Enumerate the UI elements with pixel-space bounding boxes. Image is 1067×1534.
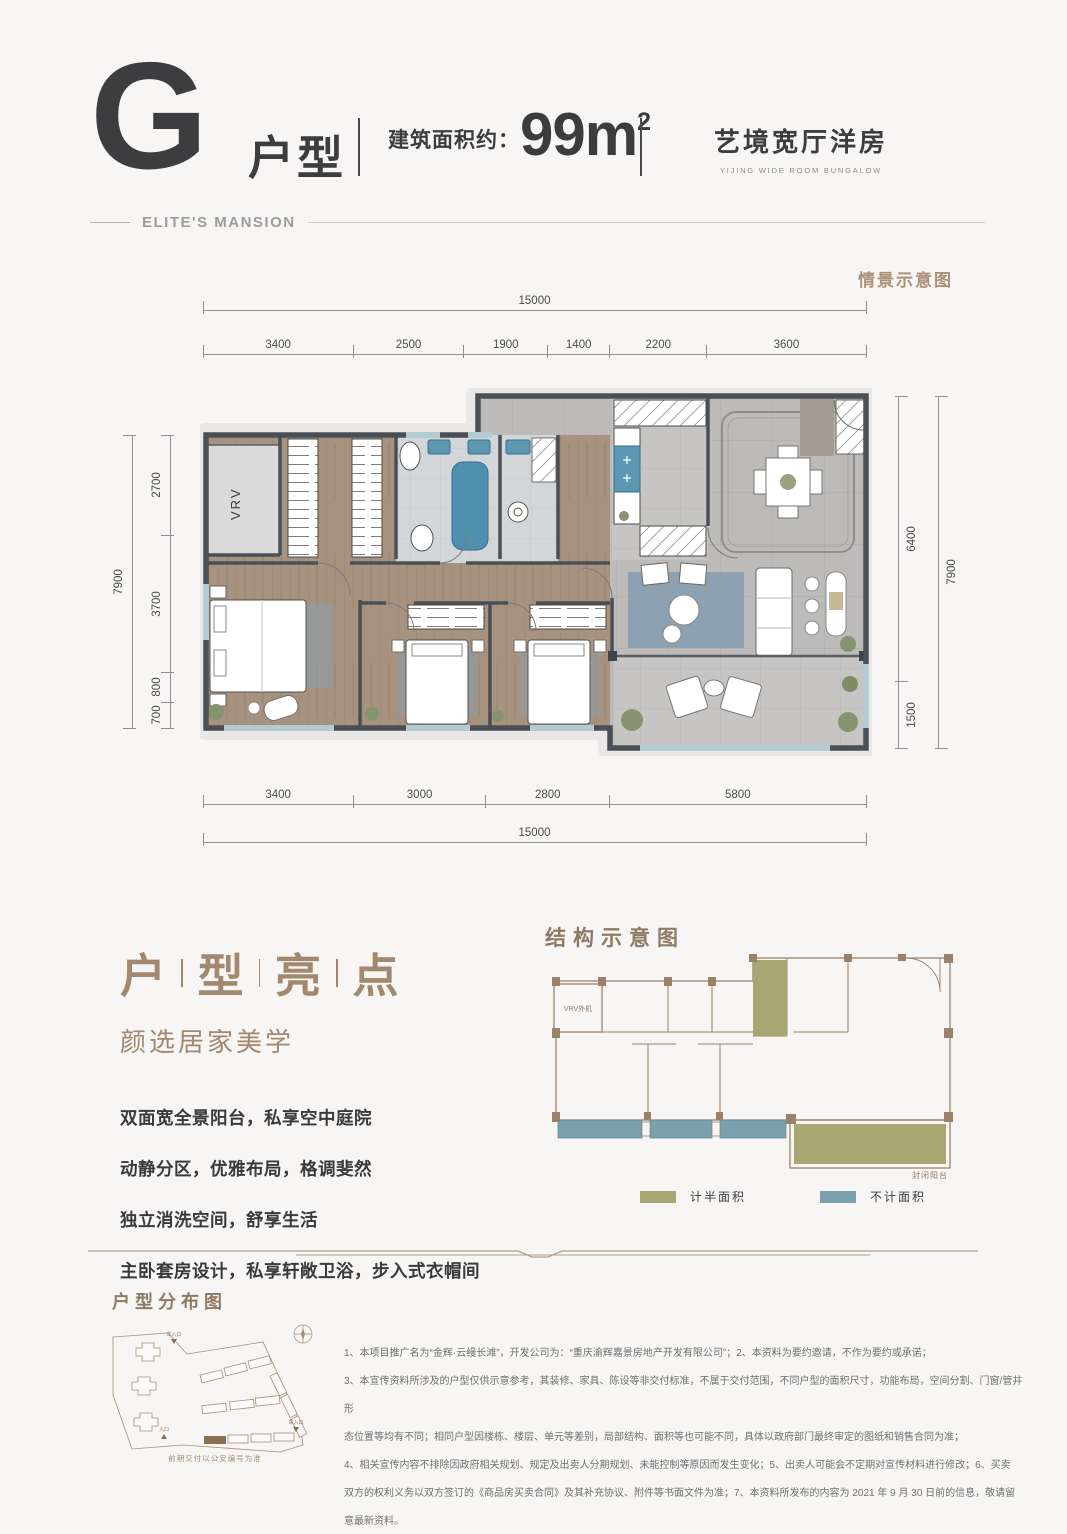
title-bar bbox=[336, 959, 338, 987]
highlights-title-char: 型 bbox=[198, 940, 244, 1006]
header-divider bbox=[640, 118, 642, 176]
dim-left-segments: 27003700800700 bbox=[144, 435, 171, 728]
wall-pier bbox=[608, 651, 617, 661]
tagline-block: 艺境宽厅洋房 YIJING WIDE ROOM BUNGALOW bbox=[676, 122, 926, 175]
vrv-outdoor-label: VRV外机 bbox=[564, 1004, 592, 1013]
header-divider bbox=[358, 118, 360, 176]
dim-label: 5800 bbox=[725, 789, 751, 801]
svg-text:入口: 入口 bbox=[159, 1427, 169, 1433]
dim-segment: 1500 bbox=[899, 681, 925, 748]
dim-label: 1500 bbox=[906, 702, 918, 728]
tagline: 艺境宽厅洋房 bbox=[676, 122, 926, 159]
dim-segment: 800 bbox=[144, 672, 170, 702]
brand-row: ELITE'S MANSION bbox=[90, 214, 985, 231]
dim-label: 3600 bbox=[774, 339, 800, 351]
dim-label: 700 bbox=[151, 705, 163, 724]
dim-segment: 1400 bbox=[548, 328, 610, 354]
highlights-title: 户 型 亮 点 bbox=[120, 940, 540, 1006]
site-plan: 车入口 入口 车入口 bbox=[100, 1312, 330, 1462]
dim-top-segments: 340025001900140022003600 bbox=[203, 328, 866, 355]
dim-segment: 2500 bbox=[353, 328, 464, 354]
dim-label: 800 bbox=[151, 678, 163, 697]
enclosed-balcony-label: 封闭阳台 bbox=[912, 1170, 948, 1180]
dim-top-total: 15000 bbox=[203, 284, 866, 311]
dim-bottom-total: 15000 bbox=[203, 816, 866, 843]
title-bar bbox=[259, 959, 261, 987]
highlights-title-char: 点 bbox=[353, 940, 399, 1006]
dim-label: 7900 bbox=[113, 569, 125, 595]
dim-right-total: 7900 bbox=[938, 396, 965, 748]
brand-line bbox=[308, 222, 985, 223]
tagline-en: YIJING WIDE ROOM BUNGALOW bbox=[676, 166, 926, 175]
dim-label: 7900 bbox=[946, 559, 958, 585]
scene-note: 情景示意图 bbox=[858, 266, 953, 291]
dim-segment: 3400 bbox=[203, 328, 353, 354]
no-count-label: 不计面积 bbox=[870, 1188, 926, 1205]
highlights-title-char: 户 bbox=[120, 940, 166, 1006]
distribution-title: 户型分布图 bbox=[112, 1288, 227, 1314]
dim-label: 15000 bbox=[519, 827, 551, 839]
svg-text:车入口: 车入口 bbox=[288, 1419, 303, 1426]
highlight-item: 动静分区，优雅布局，格调斐然 bbox=[120, 1156, 540, 1181]
dim-segment: 6400 bbox=[899, 396, 925, 681]
dim-segment: 15000 bbox=[203, 284, 866, 310]
dim-segment: 2700 bbox=[144, 435, 170, 535]
structure-diagram: VRV外机 封闭阳台 bbox=[548, 948, 960, 1180]
floor-plan: VRV bbox=[200, 388, 872, 756]
highlight-item: 独立消洗空间，舒享生活 bbox=[120, 1207, 540, 1232]
dim-segment: 3600 bbox=[707, 328, 866, 354]
dim-left-total: 7900 bbox=[106, 435, 133, 728]
vrv-platform: VRV bbox=[206, 445, 280, 555]
highlight-item: 双面宽全景阳台，私享空中庭院 bbox=[120, 1105, 540, 1130]
dim-segment: 1900 bbox=[464, 328, 548, 354]
unit-type-label: 户型 bbox=[248, 122, 346, 188]
dim-segment: 3700 bbox=[144, 535, 170, 672]
dim-label: 2700 bbox=[151, 472, 163, 498]
dim-label: 3000 bbox=[407, 789, 433, 801]
dim-label: 6400 bbox=[906, 526, 918, 552]
area-label: 建筑面积约： bbox=[388, 124, 520, 154]
title-bar bbox=[181, 959, 183, 987]
dim-bottom-segments: 3400300028005800 bbox=[203, 778, 866, 805]
section-divider bbox=[80, 1246, 986, 1262]
no-count-swatch bbox=[820, 1191, 856, 1203]
highlights-title-char: 亮 bbox=[275, 940, 321, 1006]
dim-label: 15000 bbox=[519, 295, 551, 307]
half-area-balcony bbox=[794, 1124, 946, 1164]
no-count-bays bbox=[558, 1120, 786, 1138]
dim-segment: 700 bbox=[144, 702, 170, 728]
dim-segment: 7900 bbox=[106, 435, 132, 728]
half-area-entry bbox=[753, 960, 787, 1036]
dim-label: 2200 bbox=[645, 339, 671, 351]
highlighted-building bbox=[204, 1436, 226, 1444]
half-area-label: 计半面积 bbox=[690, 1188, 746, 1205]
dim-segment: 3400 bbox=[203, 778, 353, 804]
dim-label: 1900 bbox=[493, 339, 519, 351]
dim-segment: 2200 bbox=[610, 328, 707, 354]
disclaimer-text: 1、本项目推广名为“金辉·云缦长滩”，开发公司为：“重庆渝辉嘉景房地产开发有限公… bbox=[344, 1340, 1024, 1534]
dim-label: 2500 bbox=[396, 339, 422, 351]
unit-type-letter: G bbox=[90, 40, 206, 192]
area-value: 99m bbox=[520, 106, 637, 163]
compass-icon bbox=[294, 1325, 312, 1343]
dim-label: 3700 bbox=[151, 591, 163, 617]
dim-right-segments: 64001500 bbox=[898, 396, 925, 748]
dim-segment: 15000 bbox=[203, 816, 866, 842]
brochure-page: G 户型 建筑面积约： 99m 2 艺境宽厅洋房 YIJING WIDE ROO… bbox=[0, 0, 1067, 1534]
svg-text:车入口: 车入口 bbox=[166, 1331, 181, 1338]
dim-segment: 3000 bbox=[353, 778, 486, 804]
area-spec: 建筑面积约： 99m 2 bbox=[388, 106, 651, 163]
dim-label: 3400 bbox=[265, 339, 291, 351]
site-caption: 前期交付以公安编号为准 bbox=[100, 1453, 330, 1464]
brand-name: ELITE'S MANSION bbox=[142, 214, 296, 231]
slab-buildings bbox=[200, 1356, 307, 1444]
dim-label: 1400 bbox=[566, 339, 592, 351]
highlights-subtitle: 颜选居家美学 bbox=[120, 1022, 540, 1059]
entry-area bbox=[800, 398, 864, 456]
dim-label: 3400 bbox=[265, 789, 291, 801]
dim-label: 2800 bbox=[535, 789, 561, 801]
dim-segment: 2800 bbox=[486, 778, 610, 804]
dim-segment: 7900 bbox=[939, 396, 965, 748]
dim-segment: 5800 bbox=[610, 778, 866, 804]
tower-buildings bbox=[132, 1343, 160, 1431]
svg-text:VRV: VRV bbox=[228, 488, 243, 521]
brand-dash bbox=[90, 222, 130, 223]
half-area-swatch bbox=[640, 1191, 676, 1203]
structure-legend: 计半面积 不计面积 bbox=[640, 1188, 986, 1205]
